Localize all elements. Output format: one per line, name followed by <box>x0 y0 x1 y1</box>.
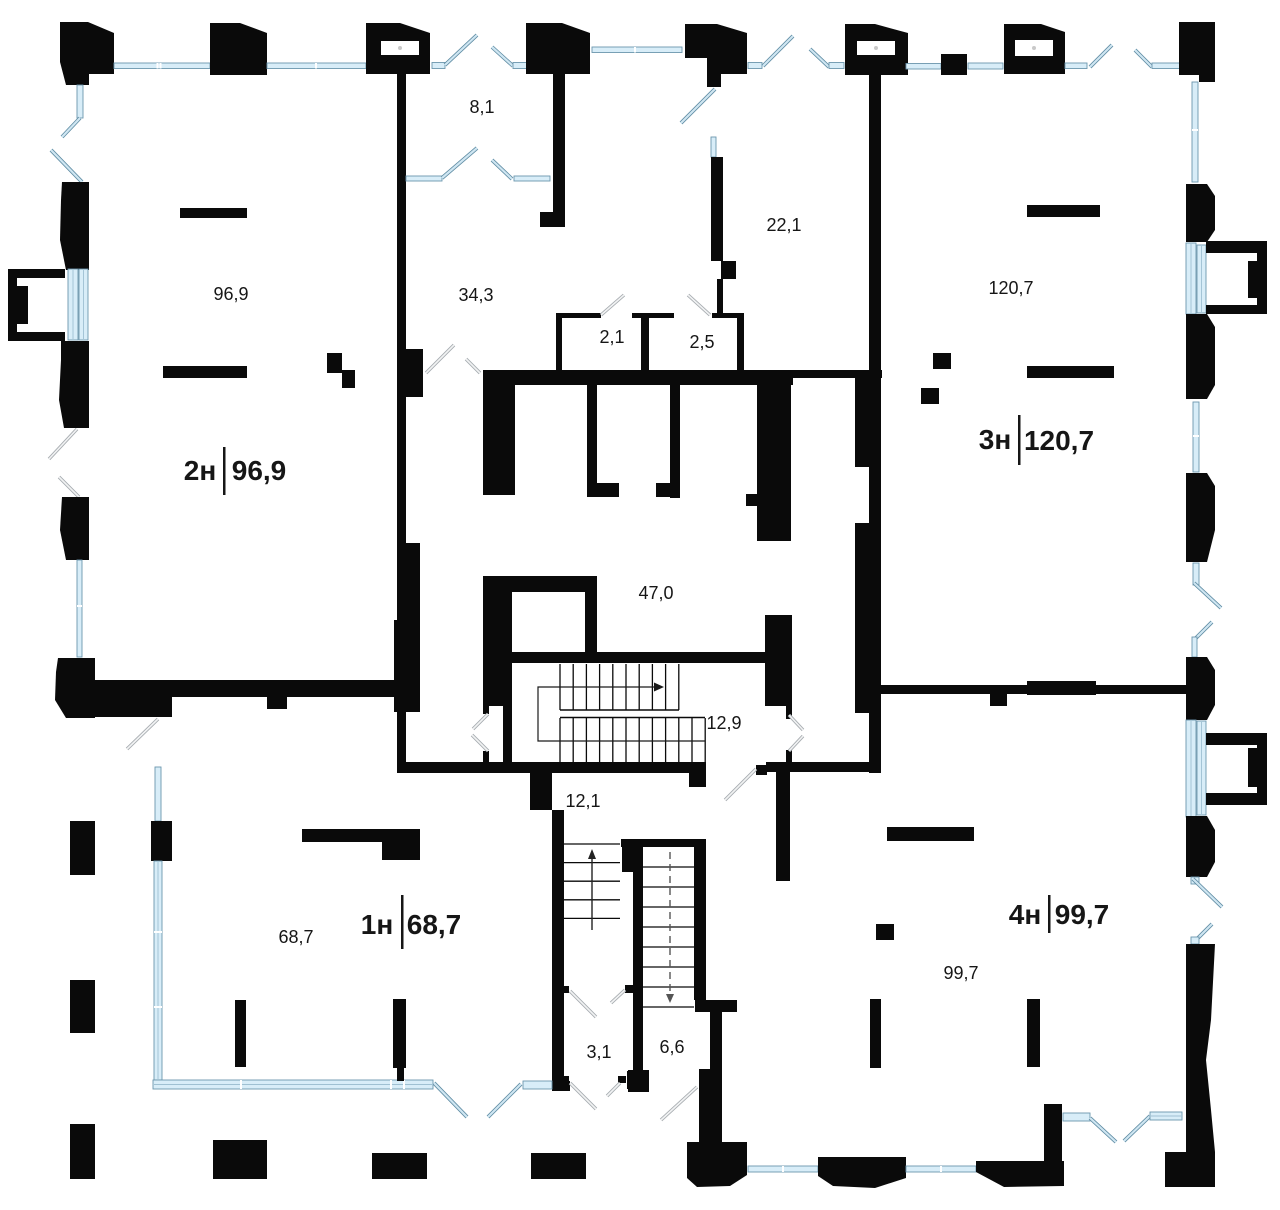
svg-text:1н: 1н <box>361 909 393 940</box>
svg-text:2н: 2н <box>184 455 216 486</box>
svg-text:120,7: 120,7 <box>1024 425 1094 456</box>
svg-text:8,1: 8,1 <box>469 97 494 117</box>
svg-text:47,0: 47,0 <box>638 583 673 603</box>
svg-text:22,1: 22,1 <box>766 215 801 235</box>
svg-text:2,1: 2,1 <box>599 327 624 347</box>
svg-text:12,9: 12,9 <box>706 713 741 733</box>
svg-text:2,5: 2,5 <box>689 332 714 352</box>
svg-text:3н: 3н <box>979 424 1011 455</box>
svg-text:120,7: 120,7 <box>988 278 1033 298</box>
svg-text:99,7: 99,7 <box>943 963 978 983</box>
svg-text:96,9: 96,9 <box>213 284 248 304</box>
svg-text:68,7: 68,7 <box>407 909 462 940</box>
svg-text:12,1: 12,1 <box>565 791 600 811</box>
svg-text:3,1: 3,1 <box>586 1042 611 1062</box>
svg-text:99,7: 99,7 <box>1055 899 1110 930</box>
svg-text:68,7: 68,7 <box>278 927 313 947</box>
svg-text:4н: 4н <box>1009 899 1041 930</box>
svg-text:96,9: 96,9 <box>232 455 287 486</box>
svg-text:6,6: 6,6 <box>659 1037 684 1057</box>
svg-text:34,3: 34,3 <box>458 285 493 305</box>
